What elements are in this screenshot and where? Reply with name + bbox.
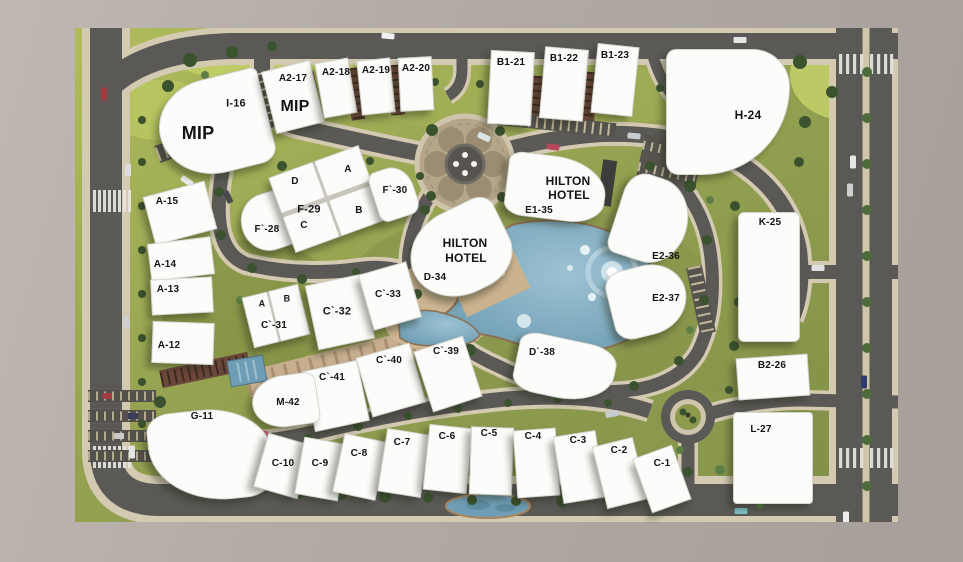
plot-label: M-42	[276, 398, 300, 408]
plot-c-33[interactable]: C`-33	[365, 267, 415, 325]
plot-a2-17[interactable]: A2-17MIP	[268, 65, 318, 129]
plot-label: B	[355, 206, 362, 216]
plot-label: K-25	[759, 218, 781, 228]
plot-label: C-1	[654, 459, 671, 469]
plot-label: B1-21	[497, 58, 525, 68]
plot-label: F`-30	[383, 186, 408, 196]
plot-label: F`-28	[255, 225, 280, 235]
plot-i-16[interactable]: I-16MIP	[159, 78, 269, 174]
plot-a2-20[interactable]: A2-20	[399, 57, 433, 111]
plot-label: B	[284, 295, 291, 304]
plot-k-25[interactable]: K-25	[738, 212, 800, 342]
plot-label: F-29	[297, 205, 320, 216]
plot-label: C`-33	[375, 290, 401, 300]
plot-label: C-9	[312, 459, 329, 469]
plot-label: C-4	[525, 432, 542, 442]
plot-label: D-34	[424, 273, 446, 283]
plot-shape[interactable]	[602, 257, 695, 344]
plot-label: A2-20	[402, 64, 430, 74]
plot-label: C-2	[611, 446, 628, 456]
master-plan-stage: I-16MIPA2-17MIPA2-18A2-19A2-20B1-21B1-22…	[0, 0, 963, 562]
plot-label: E2-36	[652, 252, 680, 262]
plot-c-3[interactable]: C-3	[558, 433, 601, 501]
plot-label: C	[300, 221, 307, 231]
plot-label: A	[344, 165, 351, 175]
plot-label: A2-18	[322, 68, 350, 78]
plot-shape[interactable]	[632, 445, 691, 514]
plot-label: C`-39	[433, 347, 459, 357]
plot-label: C-7	[394, 438, 411, 448]
plot-b2-26[interactable]: B2-26	[737, 356, 809, 398]
plot-h-24[interactable]: H-24	[666, 49, 790, 175]
plot-label: I-16	[226, 99, 246, 110]
plot-c-5[interactable]: C-5	[470, 427, 513, 495]
plot-a-15[interactable]: A-15	[148, 188, 212, 238]
plot-label: MIP	[280, 99, 309, 115]
plot-label: C-10	[272, 459, 294, 469]
plot-c-8[interactable]: C-8	[338, 437, 382, 497]
plot-e2-37[interactable]: E2-37	[609, 265, 687, 335]
plot-c-2[interactable]: C-2	[599, 441, 641, 505]
plot-label: HOTEL	[445, 252, 487, 264]
plot-label: A-13	[157, 285, 179, 295]
plot-c-1[interactable]: C-1	[641, 450, 683, 508]
plot-label: C`-41	[319, 373, 345, 383]
plot-label: C-5	[481, 429, 498, 439]
plot-label: C-3	[570, 436, 587, 446]
roundabout	[661, 390, 715, 444]
plot-label: D`-38	[529, 348, 555, 358]
plot-a-14[interactable]: A-14	[149, 240, 213, 278]
plot-b1-22[interactable]: B1-22	[542, 48, 586, 120]
plot-label: HILTON	[443, 237, 488, 249]
plot-label: C`-40	[376, 356, 402, 366]
plot-e1-35[interactable]: HILTONHOTELE1-35	[506, 156, 606, 220]
plot-label: C-6	[439, 432, 456, 442]
plot-label: E1-35	[525, 206, 553, 216]
plot-b1-23[interactable]: B1-23	[594, 45, 636, 115]
plot-label: B2-26	[758, 361, 786, 371]
plot-b1-21[interactable]: B1-21	[489, 51, 533, 125]
plot-c-39[interactable]: C`-39	[422, 342, 474, 406]
plot-shape[interactable]	[733, 412, 813, 504]
plot-label: G-11	[191, 412, 213, 422]
plot-shape[interactable]	[738, 212, 800, 342]
plot-c-4[interactable]: C-4	[515, 429, 558, 497]
plot-d-34[interactable]: HILTONHOTELD-34	[409, 209, 511, 295]
plot-shape[interactable]	[242, 284, 311, 348]
plot-label: A2-19	[362, 66, 390, 76]
plot-label: B1-23	[601, 51, 629, 61]
plot-label: D	[291, 177, 298, 187]
plot-c-6[interactable]: C-6	[426, 426, 470, 492]
plot-a2-18[interactable]: A2-18	[319, 60, 353, 116]
plot-label: A	[259, 300, 266, 309]
plot-l-27[interactable]: L-27	[733, 412, 813, 504]
plot-a2-19[interactable]: A2-19	[359, 59, 393, 114]
plot-c-32[interactable]: C`-32	[311, 279, 369, 345]
plot-label: C`-32	[323, 307, 352, 318]
plot-label: C-8	[351, 449, 368, 459]
plot-c-7[interactable]: C-7	[382, 431, 426, 495]
plot-c-31[interactable]: ABC`-31	[247, 290, 305, 342]
plot-c-40[interactable]: C`-40	[363, 349, 419, 411]
plot-label: HILTON	[546, 175, 591, 187]
plot-f-29[interactable]: DAF-29BC	[279, 159, 375, 239]
plot-label: A-12	[158, 341, 180, 351]
plot-a-13[interactable]: A-13	[151, 278, 213, 314]
plot-label: A-15	[156, 197, 178, 207]
plot-label: C`-31	[261, 321, 287, 331]
plot-shape[interactable]	[510, 329, 620, 408]
plot-a-12[interactable]: A-12	[152, 322, 214, 364]
plot-e2-36[interactable]: E2-36	[616, 177, 688, 263]
plot-label: B1-22	[550, 54, 578, 64]
plot-shape[interactable]	[666, 49, 790, 175]
plot-label: MIP	[182, 124, 215, 142]
plot-shape[interactable]	[268, 145, 386, 253]
plot-shape[interactable]	[150, 276, 214, 315]
plot-label: L-27	[750, 425, 771, 435]
plot-label: E2-37	[652, 294, 680, 304]
plot-label: HOTEL	[548, 189, 590, 201]
plot-label: A2-17	[279, 74, 307, 84]
plot-label: A-14	[154, 260, 176, 270]
plot-label: H-24	[735, 109, 762, 121]
plot-d-38[interactable]: D`-38	[515, 339, 615, 399]
